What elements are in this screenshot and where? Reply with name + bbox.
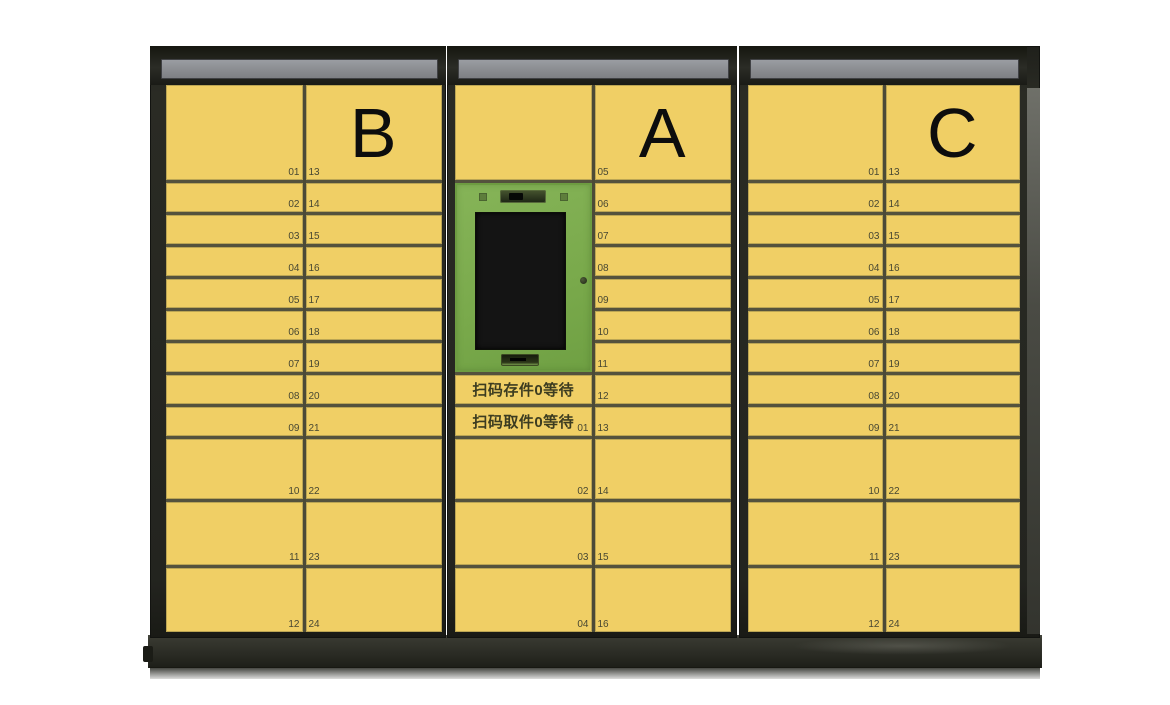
door-number: 03 xyxy=(288,231,299,243)
locker-door[interactable]: 06 xyxy=(748,311,883,340)
door-number: 15 xyxy=(309,231,320,243)
door-number: 13 xyxy=(309,167,320,179)
cabinet-b-left-column: 01 02 03 04 05 06 07 08 09 10 11 12 xyxy=(166,85,303,632)
locker-door[interactable]: 18 xyxy=(886,311,1021,340)
door-number: 12 xyxy=(288,619,299,631)
door-number: 02 xyxy=(288,199,299,211)
locker-door[interactable]: 20 xyxy=(886,375,1021,404)
cabinet-b-right-column: B 13 14 15 16 17 18 19 20 21 22 23 24 xyxy=(306,85,443,632)
door-number: 10 xyxy=(598,327,609,339)
locker-door[interactable]: 07 xyxy=(166,343,303,372)
locker-door[interactable]: 19 xyxy=(306,343,443,372)
door-number: 17 xyxy=(309,295,320,307)
door-number: 08 xyxy=(288,391,299,403)
locker-door[interactable]: 10 xyxy=(748,439,883,499)
locker-door[interactable]: 09 xyxy=(748,407,883,436)
door-number: 05 xyxy=(868,295,879,307)
locker-door[interactable]: 06 xyxy=(166,311,303,340)
cabinet-c-doors: 01 02 03 04 05 06 07 08 09 10 11 12 C 13… xyxy=(748,85,1020,632)
cabinet-a: 扫码存件0等待 扫码取件0等待 01 02 03 04 A 05 06 07 0… xyxy=(447,46,737,638)
door-number: 12 xyxy=(868,619,879,631)
locker-door[interactable]: 04 xyxy=(748,247,883,276)
locker-door[interactable]: 14 xyxy=(886,183,1021,212)
kiosk-panel xyxy=(455,183,592,372)
locker-door[interactable]: 04 xyxy=(455,568,592,632)
locker-door[interactable]: 02 xyxy=(748,183,883,212)
locker-door[interactable]: 11 xyxy=(748,502,883,565)
door-number: 20 xyxy=(889,391,900,403)
locker-door[interactable]: 09 xyxy=(595,279,732,308)
locker-door[interactable]: 02 xyxy=(455,439,592,499)
locker-door[interactable]: 17 xyxy=(886,279,1021,308)
locker-door[interactable]: 21 xyxy=(306,407,443,436)
door-number: 24 xyxy=(309,619,320,631)
door-number: 04 xyxy=(868,263,879,275)
door-number: 14 xyxy=(598,486,609,498)
cabinet-letter: B xyxy=(306,85,443,180)
locker-door[interactable]: 03 xyxy=(455,502,592,565)
locker-door[interactable]: 16 xyxy=(595,568,732,632)
locker-door[interactable]: 01 xyxy=(748,85,883,180)
cabinet-side-panel xyxy=(1027,88,1040,634)
cabinet-a-sign xyxy=(458,59,729,79)
locker-door[interactable]: 22 xyxy=(306,439,443,499)
door-number: 10 xyxy=(868,486,879,498)
cabinet-letter: C xyxy=(886,85,1021,180)
door-number: 19 xyxy=(309,359,320,371)
locker-door[interactable]: B 13 xyxy=(306,85,443,180)
cabinet-b-header xyxy=(150,46,446,85)
door-number: 23 xyxy=(889,552,900,564)
cabinet-b-doors: 01 02 03 04 05 06 07 08 09 10 11 12 B 13… xyxy=(166,85,442,632)
door-number: 09 xyxy=(868,423,879,435)
locker-door[interactable]: 15 xyxy=(306,215,443,244)
locker-door[interactable]: 12 xyxy=(595,375,732,404)
locker-door[interactable]: 01 xyxy=(166,85,303,180)
door-number: 21 xyxy=(889,423,900,435)
locker-door[interactable]: 11 xyxy=(166,502,303,565)
door-number: 19 xyxy=(889,359,900,371)
locker-door[interactable]: 04 xyxy=(166,247,303,276)
locker-door[interactable]: 19 xyxy=(886,343,1021,372)
door-number: 16 xyxy=(889,263,900,275)
door-number: 07 xyxy=(288,359,299,371)
cabinet-c: 01 02 03 04 05 06 07 08 09 10 11 12 C 13… xyxy=(739,46,1040,638)
locker-door[interactable]: 17 xyxy=(306,279,443,308)
door-number: 09 xyxy=(598,295,609,307)
door-number: 05 xyxy=(288,295,299,307)
door-number: 14 xyxy=(889,199,900,211)
locker-door[interactable]: 18 xyxy=(306,311,443,340)
camera-scanner-icon xyxy=(500,190,546,203)
cabinet-c-left-column: 01 02 03 04 05 06 07 08 09 10 11 12 xyxy=(748,85,883,632)
kiosk-touchscreen[interactable] xyxy=(476,213,565,349)
kiosk-top-row xyxy=(455,190,592,204)
door-number: 01 xyxy=(577,423,588,435)
locker-door[interactable]: 12 xyxy=(166,568,303,632)
door-number: 18 xyxy=(889,327,900,339)
door-number: 07 xyxy=(868,359,879,371)
locker-door[interactable]: 10 xyxy=(166,439,303,499)
locker-door[interactable]: 15 xyxy=(595,502,732,565)
door-number: 11 xyxy=(869,552,879,564)
door-number: 11 xyxy=(598,359,608,371)
door-number: 04 xyxy=(577,619,588,631)
door-number: 02 xyxy=(868,199,879,211)
locker-door[interactable]: 14 xyxy=(595,439,732,499)
door-number: 24 xyxy=(889,619,900,631)
locker-door[interactable]: 24 xyxy=(886,568,1021,632)
locker-door[interactable]: 03 xyxy=(166,215,303,244)
door-number: 23 xyxy=(309,552,320,564)
door-number: 15 xyxy=(598,552,609,564)
locker-door[interactable]: 02 xyxy=(166,183,303,212)
door-number: 10 xyxy=(288,486,299,498)
door-number: 18 xyxy=(309,327,320,339)
door-number: 22 xyxy=(889,486,900,498)
keyhole-icon xyxy=(580,277,587,284)
cabinet-b: 01 02 03 04 05 06 07 08 09 10 11 12 B 13… xyxy=(150,46,446,638)
door-number: 08 xyxy=(868,391,879,403)
locker-door[interactable]: 05 xyxy=(748,279,883,308)
barcode-scanner-slot[interactable] xyxy=(501,354,539,366)
door-number: 11 xyxy=(289,552,299,564)
cabinet-a-doors: 扫码存件0等待 扫码取件0等待 01 02 03 04 A 05 06 07 0… xyxy=(455,85,731,632)
door-number: 08 xyxy=(598,263,609,275)
cabinet-a-right-column: A 05 06 07 08 09 10 11 12 13 14 15 16 xyxy=(595,85,732,632)
locker-door[interactable]: A 05 xyxy=(595,85,732,180)
door-number: 09 xyxy=(288,423,299,435)
door-number: 06 xyxy=(288,327,299,339)
door-number: 05 xyxy=(598,167,609,179)
door-number: 12 xyxy=(598,391,609,403)
locker-door[interactable]: 23 xyxy=(886,502,1021,565)
locker-door[interactable]: 24 xyxy=(306,568,443,632)
locker-door[interactable]: 16 xyxy=(306,247,443,276)
cabinet-b-sign xyxy=(161,59,438,79)
deposit-status-text: 扫码存件0等待 xyxy=(472,379,574,400)
door-number: 06 xyxy=(598,199,609,211)
door-number: 22 xyxy=(309,486,320,498)
door-number: 04 xyxy=(288,263,299,275)
locker-door[interactable]: 12 xyxy=(748,568,883,632)
locker-door[interactable]: 15 xyxy=(886,215,1021,244)
locker-door[interactable]: 11 xyxy=(595,343,732,372)
deposit-status-cell: 扫码存件0等待 xyxy=(455,375,592,404)
indicator-light-icon xyxy=(479,193,487,201)
door-number: 13 xyxy=(598,423,609,435)
locker-door[interactable]: 08 xyxy=(748,375,883,404)
door-number: 20 xyxy=(309,391,320,403)
door-number: 01 xyxy=(868,167,879,179)
cabinet-a-header xyxy=(447,46,737,85)
door-number: 14 xyxy=(309,199,320,211)
door-number: 16 xyxy=(309,263,320,275)
cabinet-c-right-column: C 13 14 15 16 17 18 19 20 21 22 23 24 xyxy=(886,85,1021,632)
locker-door[interactable]: 03 xyxy=(748,215,883,244)
locker-door[interactable] xyxy=(455,85,592,180)
door-number: 03 xyxy=(868,231,879,243)
door-number: 16 xyxy=(598,619,609,631)
locker-door[interactable]: 06 xyxy=(595,183,732,212)
cabinet-c-sign xyxy=(750,59,1019,79)
base-foot xyxy=(143,646,153,662)
locker-door[interactable]: 20 xyxy=(306,375,443,404)
parcel-locker-scene: 01 02 03 04 05 06 07 08 09 10 11 12 B 13… xyxy=(0,0,1170,705)
locker-door[interactable]: 10 xyxy=(595,311,732,340)
locker-door[interactable]: 09 xyxy=(166,407,303,436)
locker-door[interactable]: 08 xyxy=(595,247,732,276)
locker-door[interactable]: 08 xyxy=(166,375,303,404)
locker-base xyxy=(148,635,1042,668)
cabinet-c-header xyxy=(739,46,1027,85)
base-highlight xyxy=(792,637,1012,655)
locker-door[interactable]: C 13 xyxy=(886,85,1021,180)
cabinet-a-left-column: 扫码存件0等待 扫码取件0等待 01 02 03 04 xyxy=(455,85,592,632)
pickup-status-cell: 扫码取件0等待 01 xyxy=(455,407,592,436)
door-number: 15 xyxy=(889,231,900,243)
pickup-status-text: 扫码取件0等待 xyxy=(472,411,574,432)
locker-door[interactable]: 07 xyxy=(595,215,732,244)
cabinet-letter: A xyxy=(595,85,732,180)
door-number: 01 xyxy=(288,167,299,179)
door-number: 13 xyxy=(889,167,900,179)
locker-door[interactable]: 23 xyxy=(306,502,443,565)
door-number: 02 xyxy=(577,486,588,498)
door-number: 07 xyxy=(598,231,609,243)
indicator-light-icon xyxy=(560,193,568,201)
door-number: 21 xyxy=(309,423,320,435)
door-number: 17 xyxy=(889,295,900,307)
locker-door[interactable]: 22 xyxy=(886,439,1021,499)
ground-shadow xyxy=(150,667,1040,679)
locker-door[interactable]: 16 xyxy=(886,247,1021,276)
locker-door[interactable]: 05 xyxy=(166,279,303,308)
locker-door[interactable]: 07 xyxy=(748,343,883,372)
locker-door[interactable]: 21 xyxy=(886,407,1021,436)
door-number: 03 xyxy=(577,552,588,564)
locker-door[interactable]: 14 xyxy=(306,183,443,212)
door-number: 06 xyxy=(868,327,879,339)
locker-door[interactable]: 13 xyxy=(595,407,732,436)
